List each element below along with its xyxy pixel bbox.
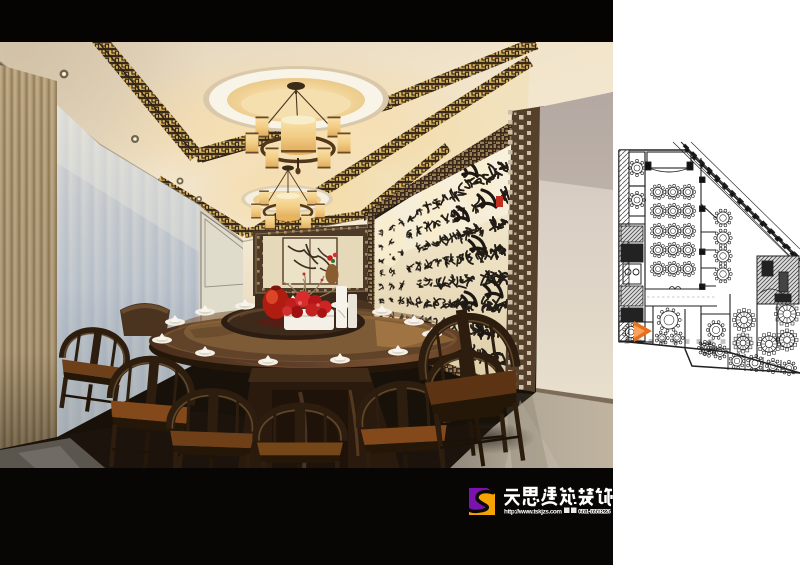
svg-text:http://www.tskjzs.com: http://www.tskjzs.com	[504, 509, 562, 516]
svg-text:0551-65568226: 0551-65568226	[578, 509, 611, 516]
